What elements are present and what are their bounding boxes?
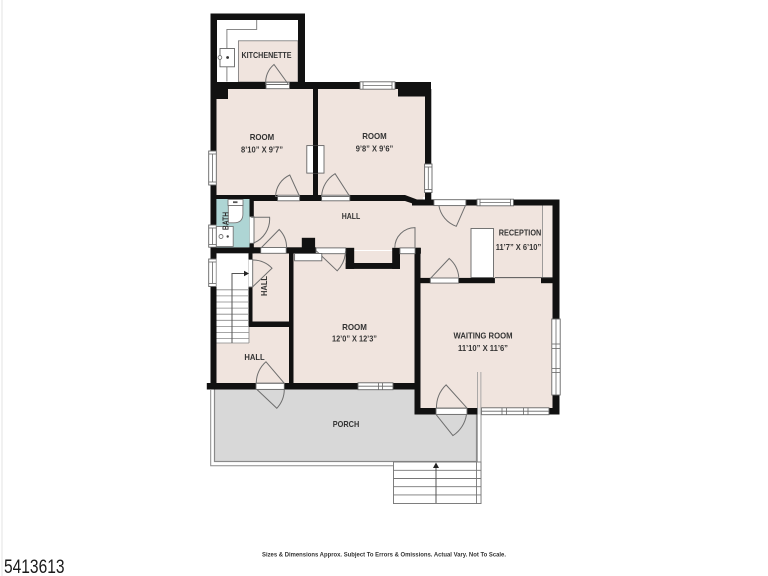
svg-text:11’7” X 6’10”: 11’7” X 6’10” bbox=[496, 243, 542, 252]
svg-text:ROOM: ROOM bbox=[250, 132, 275, 142]
svg-text:ROOM: ROOM bbox=[342, 322, 367, 332]
svg-text:RECEPTION: RECEPTION bbox=[499, 228, 542, 238]
svg-text:BATH: BATH bbox=[221, 212, 231, 230]
svg-text:PORCH: PORCH bbox=[333, 419, 360, 429]
svg-text:HALL: HALL bbox=[244, 352, 264, 362]
svg-text:Sizes & Dimensions Approx. Sub: Sizes & Dimensions Approx. Subject To Er… bbox=[262, 552, 506, 559]
svg-text:KITCHENETTE: KITCHENETTE bbox=[242, 50, 292, 60]
svg-text:WAITING ROOM: WAITING ROOM bbox=[454, 331, 513, 341]
svg-text:8’10” X 9’7”: 8’10” X 9’7” bbox=[241, 146, 283, 155]
svg-text:12’0” X 12’3”: 12’0” X 12’3” bbox=[332, 335, 377, 344]
svg-text:9’8” X 9’6”: 9’8” X 9’6” bbox=[356, 145, 394, 154]
svg-text:ROOM: ROOM bbox=[362, 131, 387, 141]
svg-text:HALL: HALL bbox=[259, 276, 269, 296]
svg-text:11’10” X 11’6”: 11’10” X 11’6” bbox=[458, 344, 508, 353]
svg-text:5413613: 5413613 bbox=[4, 556, 65, 576]
svg-text:HALL: HALL bbox=[342, 211, 361, 221]
